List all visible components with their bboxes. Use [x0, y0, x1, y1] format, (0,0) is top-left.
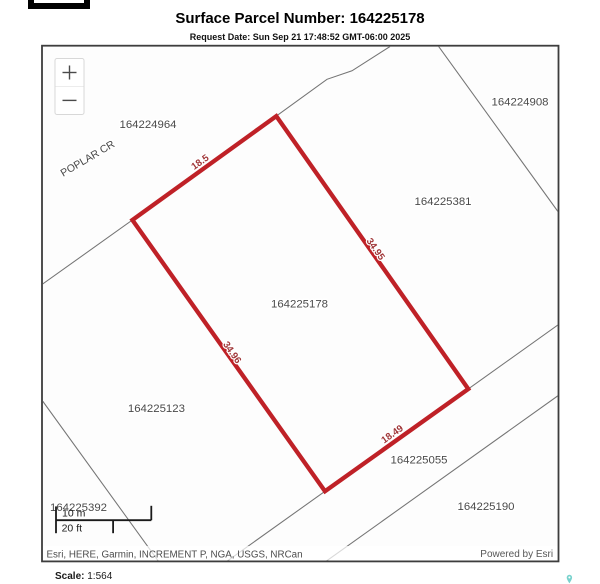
svg-text:20 ft: 20 ft [62, 522, 83, 534]
svg-text:164225055: 164225055 [390, 454, 447, 466]
svg-text:164225123: 164225123 [128, 403, 185, 415]
svg-text:164224908: 164224908 [491, 97, 548, 109]
svg-text:164225381: 164225381 [414, 196, 471, 208]
svg-text:164224964: 164224964 [119, 119, 176, 131]
svg-text:164225190: 164225190 [457, 501, 514, 513]
svg-text:164225178: 164225178 [271, 298, 328, 310]
svg-text:Powered by Esri: Powered by Esri [480, 549, 553, 560]
svg-text:10 m: 10 m [62, 507, 86, 519]
svg-text:Esri, HERE, Garmin, INCREMENT: Esri, HERE, Garmin, INCREMENT P, NGA, US… [47, 549, 303, 560]
